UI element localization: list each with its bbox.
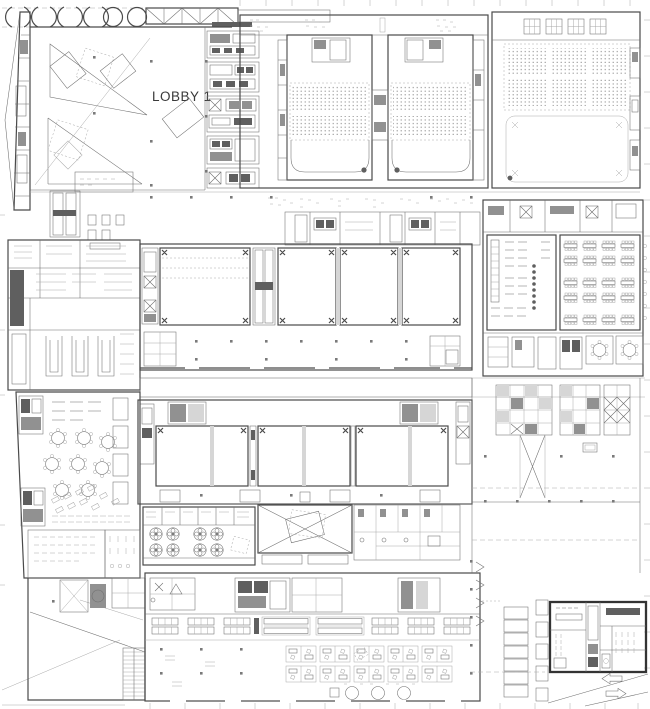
floor-plan: LOBBY 1 xyxy=(0,0,650,709)
lounge-dots xyxy=(268,198,473,207)
stair-run xyxy=(123,648,145,700)
escalator-icon xyxy=(253,248,275,325)
direction-arrow-right-icon xyxy=(606,688,626,698)
west-wing xyxy=(14,12,30,210)
upper-meeting-halls xyxy=(140,244,472,370)
theater-block xyxy=(240,15,488,188)
escalator-icon xyxy=(50,191,80,237)
lower-meeting-halls xyxy=(138,400,472,504)
scissor-stair-room xyxy=(258,505,352,564)
banquet-room-b xyxy=(560,235,640,330)
parking-stalls xyxy=(504,607,528,697)
mezzanine-rooms xyxy=(285,212,480,245)
grand-hall xyxy=(492,12,640,188)
colonnade xyxy=(6,7,147,27)
banquet-bottom-rooms xyxy=(483,333,643,369)
elevator-core-band xyxy=(207,31,259,188)
stair-strips xyxy=(536,600,548,701)
hall-side-core xyxy=(630,48,640,170)
skylight-grid xyxy=(524,19,606,34)
seat-dot-grid-icon xyxy=(393,86,468,112)
tower-core-3 xyxy=(604,385,630,435)
seat-dot-grid-icon xyxy=(393,116,468,136)
buffet-counters xyxy=(46,336,114,376)
escalator-icon xyxy=(168,402,438,424)
lobby-area: LOBBY 1 xyxy=(30,27,232,192)
service-yard xyxy=(470,560,648,706)
kitchen-block xyxy=(8,240,140,390)
column-arc-icon xyxy=(6,7,109,27)
tower-core-2 xyxy=(560,385,600,435)
hall-d xyxy=(402,248,460,325)
table-rows xyxy=(52,516,130,522)
stair-hatch-icon xyxy=(330,40,346,60)
round-meeting-tables xyxy=(330,684,415,700)
hall-c xyxy=(340,248,398,325)
corridor-chairs xyxy=(643,244,646,319)
toilet-block xyxy=(354,505,460,560)
prefunction xyxy=(140,332,472,368)
workstation-band xyxy=(145,614,480,640)
theater-2 xyxy=(388,35,473,180)
seat-dot-grid-icon xyxy=(292,116,367,136)
lounge-furniture xyxy=(250,18,456,32)
office-cores xyxy=(150,578,440,612)
lobby-label: LOBBY 1 xyxy=(152,89,212,104)
column-circle-icon xyxy=(128,8,147,27)
back-of-house xyxy=(28,578,145,700)
diagonal-tables xyxy=(51,484,119,513)
hall-a xyxy=(160,248,250,325)
annex-block xyxy=(550,602,646,672)
seat-dot-grid-icon xyxy=(292,86,367,112)
seminar-rooms xyxy=(28,530,140,578)
hall-3 xyxy=(356,426,448,486)
fan-icon xyxy=(150,528,223,556)
stair-hatch-icon xyxy=(407,40,423,60)
office-floor xyxy=(145,573,480,701)
theater-1 xyxy=(287,35,372,180)
tower-cores xyxy=(472,378,640,573)
hall-b xyxy=(278,248,336,325)
banquet-room-a xyxy=(487,235,556,330)
round-table-room xyxy=(586,336,643,364)
tower-core-1 xyxy=(496,385,552,435)
hall-1 xyxy=(156,426,248,486)
floor-plan-drawing: LOBBY 1 xyxy=(0,0,650,709)
site-boundary xyxy=(2,8,232,705)
cafe-tables xyxy=(88,215,124,249)
column-circle-icon xyxy=(104,8,123,27)
dining-tables xyxy=(52,402,101,420)
hall-lobby-band xyxy=(138,490,472,504)
restaurant xyxy=(16,392,140,578)
hall-2 xyxy=(258,426,350,486)
plant-rooms xyxy=(143,505,460,565)
banquet-top-rooms xyxy=(483,200,643,232)
banquet-rooms xyxy=(483,200,647,376)
cubicle-area xyxy=(160,646,452,700)
roof-truss-icon xyxy=(146,8,330,27)
